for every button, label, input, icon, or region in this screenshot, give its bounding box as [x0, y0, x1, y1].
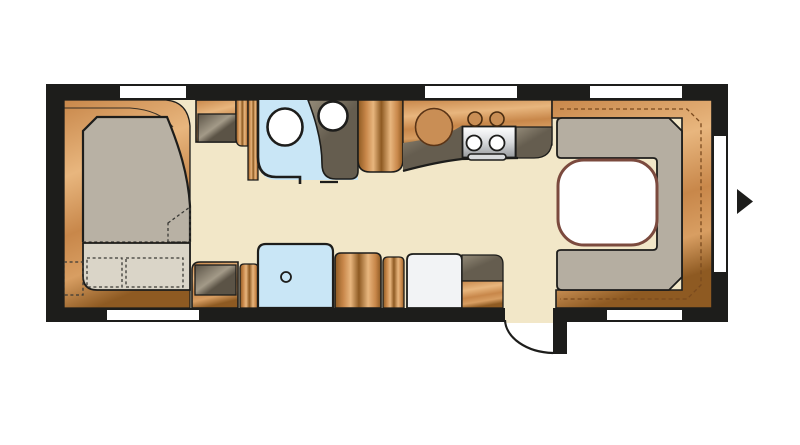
door-opening	[505, 307, 553, 323]
window-right	[714, 136, 726, 272]
cabinet-bottom-front	[195, 265, 236, 295]
washbasin	[319, 102, 348, 131]
window-top-2	[425, 86, 517, 98]
window-bottom-2	[607, 310, 682, 320]
kitchen-corner-unit	[516, 127, 552, 158]
window-bottom-1	[107, 310, 199, 320]
cupboard-strip-top-a	[236, 100, 248, 146]
wardrobe-top-front	[198, 114, 236, 142]
wall-left	[46, 84, 64, 322]
corner-unit-top	[462, 255, 503, 281]
burner-top-left	[468, 112, 482, 126]
tall-wardrobe	[358, 100, 403, 172]
window-top-3	[590, 86, 682, 98]
fridge	[407, 254, 462, 308]
dinette-table	[558, 160, 657, 245]
kitchen-sink	[416, 109, 453, 146]
oven-handle	[468, 154, 506, 160]
cabinet-strip-bottom	[240, 264, 258, 308]
toilet	[268, 109, 303, 146]
cupboard-strip-top-b	[248, 100, 258, 180]
burner-bottom-left	[467, 136, 482, 151]
floor-plan-canvas	[0, 0, 800, 445]
shower-drain	[281, 272, 291, 282]
caravan-floor-plan	[0, 0, 800, 445]
kitchen-base-cabinet-1	[335, 253, 381, 308]
door-jamb	[553, 308, 567, 354]
corner-unit-base	[462, 281, 503, 308]
bed-foot-cushion-block	[83, 243, 190, 290]
burner-bottom-right	[490, 136, 505, 151]
window-top-1	[120, 86, 186, 98]
shower-tray	[258, 244, 333, 308]
kitchen-base-cabinet-2	[383, 257, 404, 308]
burner-top-right	[490, 112, 504, 126]
